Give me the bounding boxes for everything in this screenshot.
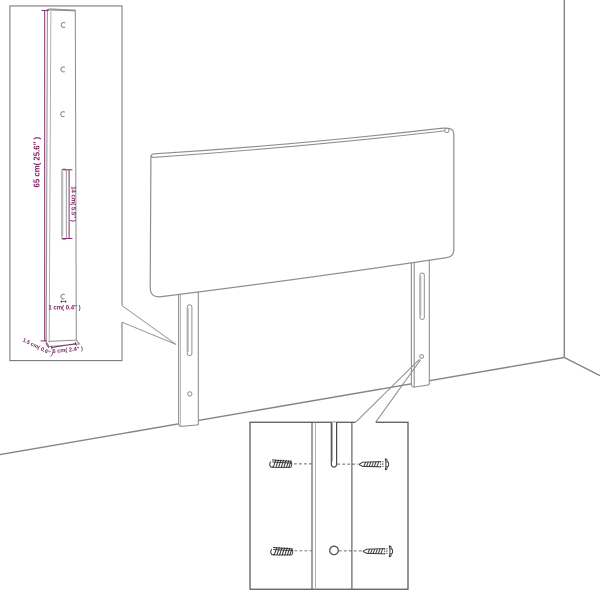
svg-text:14 cm( 5.5″ ): 14 cm( 5.5″ ) bbox=[70, 186, 76, 222]
svg-text:65 cm( 25.6″ ): 65 cm( 25.6″ ) bbox=[32, 137, 41, 188]
svg-text:1 cm( 0.4″ ): 1 cm( 0.4″ ) bbox=[48, 306, 80, 312]
